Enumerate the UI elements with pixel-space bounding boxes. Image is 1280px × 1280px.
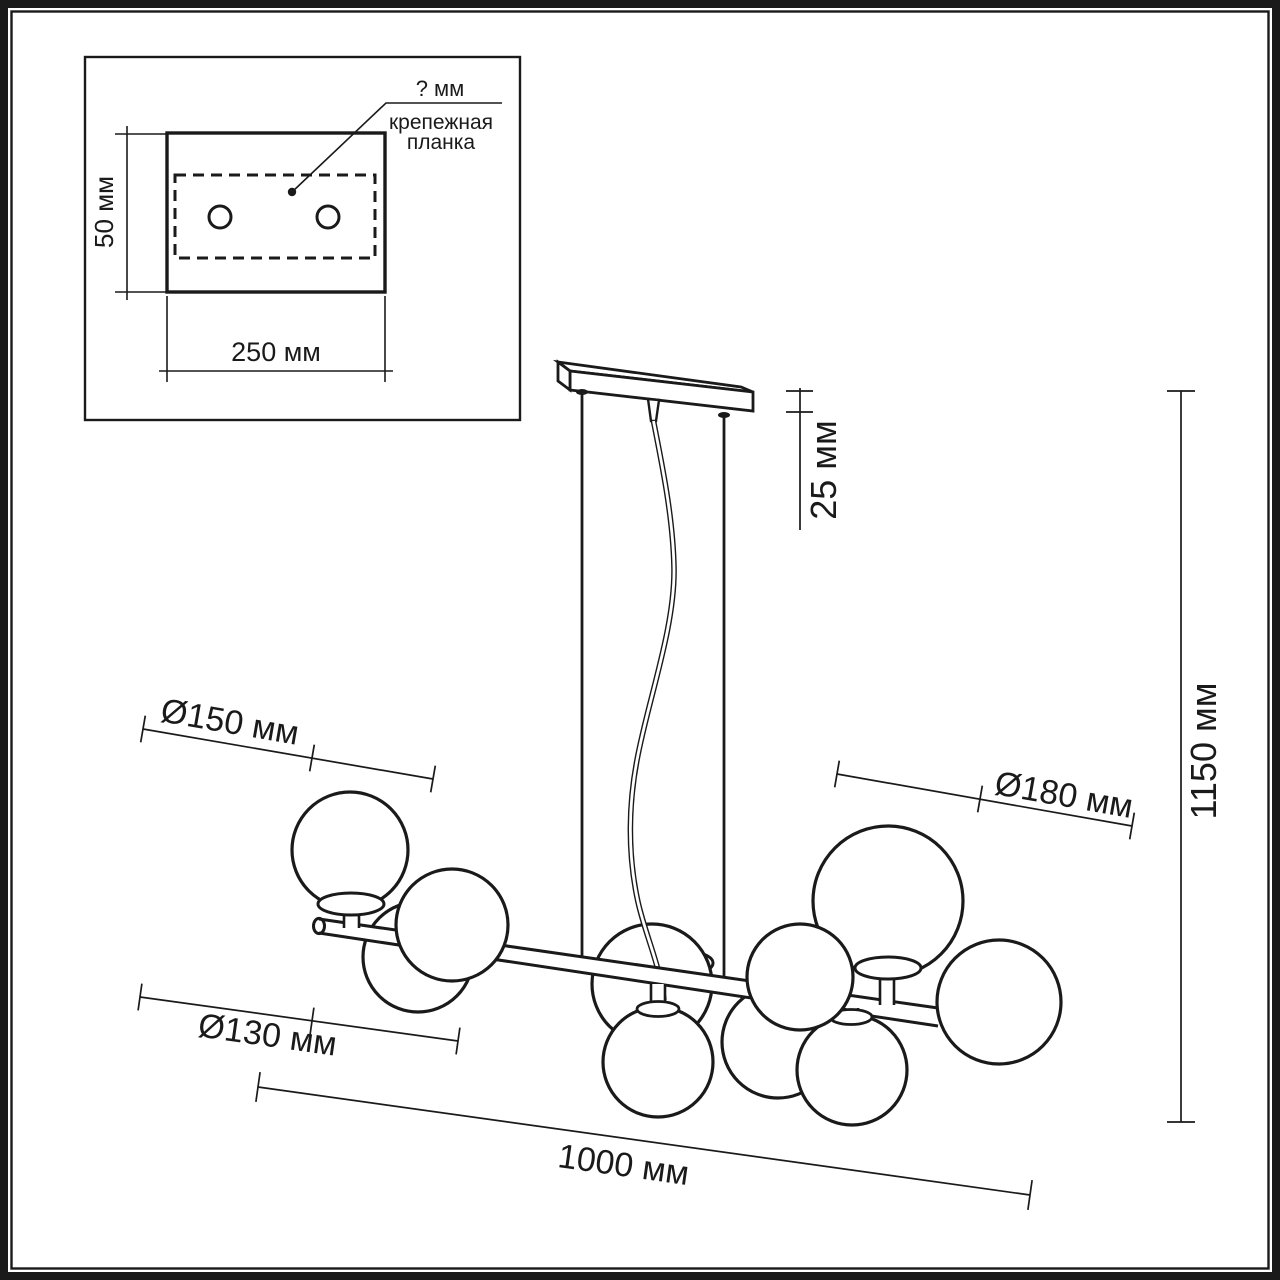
socket-cup-180 xyxy=(855,957,921,979)
glass-ball-front-right xyxy=(747,924,853,1030)
dim-label-180: Ø180 мм xyxy=(992,764,1136,826)
inset-labels: ? мм крепежная планка 50 мм 250 мм xyxy=(89,76,493,367)
mounting-hole-left xyxy=(209,206,231,228)
dim-label-130: Ø130 мм xyxy=(196,1007,339,1064)
mounting-hole-right xyxy=(317,206,339,228)
dim-label-1150: 1150 мм xyxy=(1183,683,1224,820)
socket-cup-150 xyxy=(318,893,384,915)
power-cable xyxy=(630,421,674,1000)
dim-label-25: 25 мм xyxy=(803,420,844,520)
glass-ball-lower-center xyxy=(603,1007,713,1117)
dim-label-unknown: ? мм xyxy=(416,76,465,101)
mounting-plate-outline xyxy=(167,133,385,292)
plate-height-dimension xyxy=(115,126,168,300)
pendant-fixture xyxy=(292,362,1061,1125)
callout-label-line2: планка xyxy=(407,131,476,154)
technical-drawing-page: ? мм крепежная планка 50 мм 250 мм xyxy=(0,0,1280,1280)
mounting-bar-dashed-outline xyxy=(175,175,375,258)
socket-cup-lower-center xyxy=(637,1002,679,1017)
cable-gland xyxy=(648,399,659,421)
dim-label-plate-height: 50 мм xyxy=(89,176,119,248)
glass-ball-front-left xyxy=(396,869,508,981)
dim-label-plate-width: 250 мм xyxy=(231,337,321,367)
glass-ball-lower-right xyxy=(797,1015,907,1125)
glass-ball-150 xyxy=(292,792,408,908)
glass-ball-right-end xyxy=(937,940,1061,1064)
